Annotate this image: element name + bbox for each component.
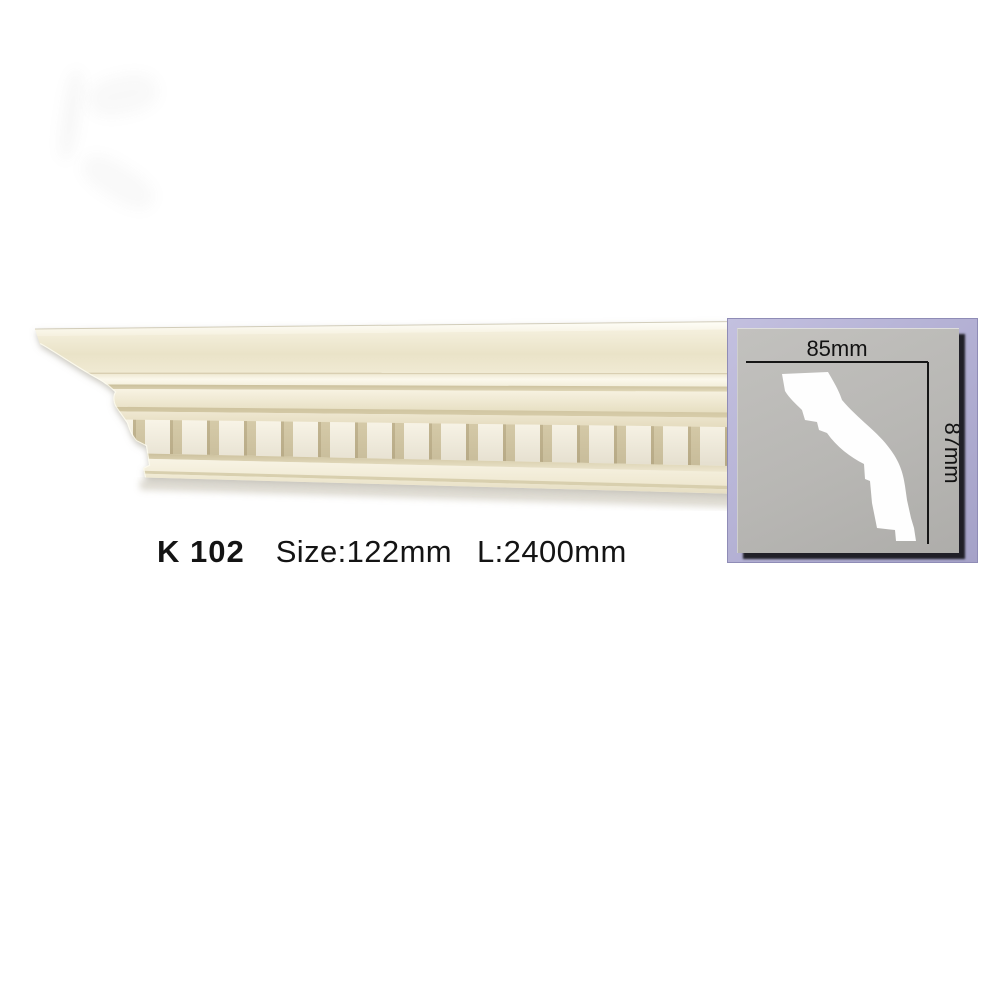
product-caption: K 102 Size:122mm L:2400mm xyxy=(157,534,627,570)
molding-profile-shape xyxy=(782,372,916,541)
profile-diagram-panel: 85mm 87mm xyxy=(727,318,978,563)
width-dimension-label: 85mm xyxy=(806,336,867,361)
product-image-page: K 102 Size:122mm L:2400mm 85mm 87mm xyxy=(0,0,1000,1000)
product-size: Size:122mm xyxy=(276,534,452,570)
molding-bands xyxy=(25,321,745,494)
product-code: K 102 xyxy=(157,534,245,570)
profile-diagram: 85mm 87mm xyxy=(737,328,959,553)
product-length: L:2400mm xyxy=(477,534,627,570)
height-dimension-label: 87mm xyxy=(940,422,959,483)
